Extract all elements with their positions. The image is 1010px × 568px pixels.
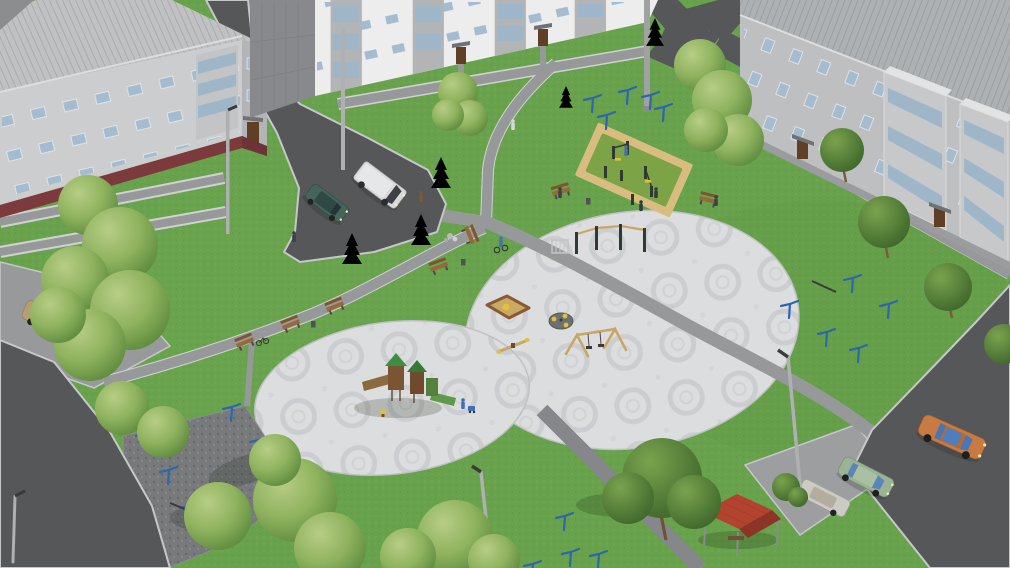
- carousel: [549, 313, 573, 329]
- courtyard-scene: [0, 0, 1010, 568]
- pedestrian: [419, 191, 423, 202]
- entrance-door: [538, 29, 548, 46]
- sand-toy: [503, 304, 510, 311]
- street-lamp: [341, 28, 345, 170]
- tower-2: [410, 372, 424, 394]
- pedestrian: [511, 119, 515, 130]
- bay-balcony-2: [960, 98, 1010, 262]
- tower-3: [426, 378, 438, 396]
- gym-user: [624, 145, 628, 156]
- gym-user: [654, 187, 658, 198]
- entrance-door: [456, 47, 466, 64]
- render-viewport: [0, 0, 1010, 568]
- person-on-bench: [558, 187, 562, 198]
- tower-1: [388, 366, 404, 390]
- shelter-table: [728, 536, 744, 540]
- gym-user: [639, 200, 643, 211]
- pedestrian: [292, 231, 296, 242]
- pedestrian: [714, 195, 718, 206]
